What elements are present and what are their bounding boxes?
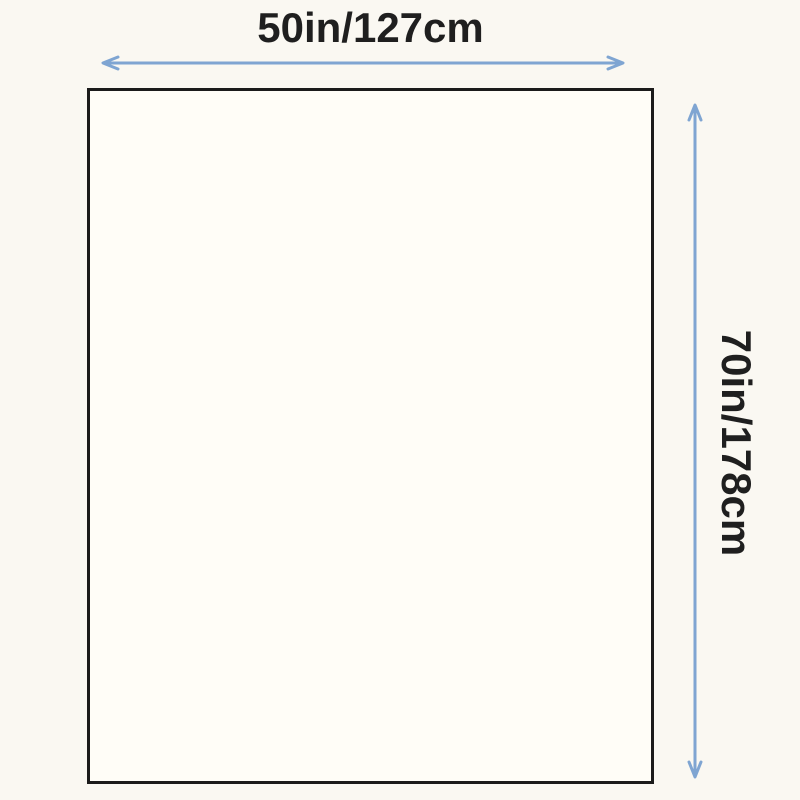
height-dimension-label: 70in/178cm: [712, 330, 760, 557]
width-dimension-label: 50in/127cm: [87, 4, 654, 52]
vertical-dimension-arrow-icon: [687, 98, 703, 784]
dimension-diagram: 50in/127cm 70in/178cm: [0, 0, 800, 800]
product-outline-rect: [87, 88, 654, 784]
horizontal-dimension-arrow-icon: [96, 55, 630, 71]
